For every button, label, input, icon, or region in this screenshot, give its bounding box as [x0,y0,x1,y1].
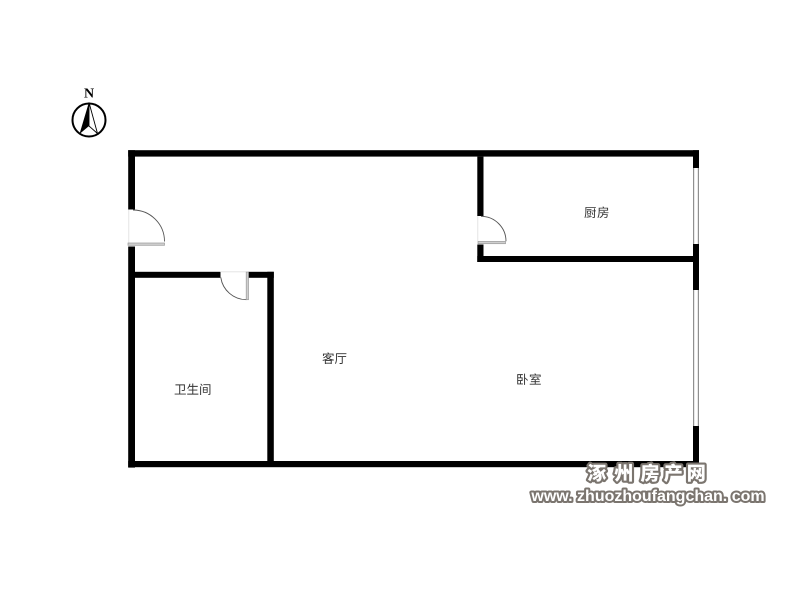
svg-text:www. zhuozhoufangchan. com: www. zhuozhoufangchan. com [530,488,764,505]
svg-text:N: N [84,87,94,102]
